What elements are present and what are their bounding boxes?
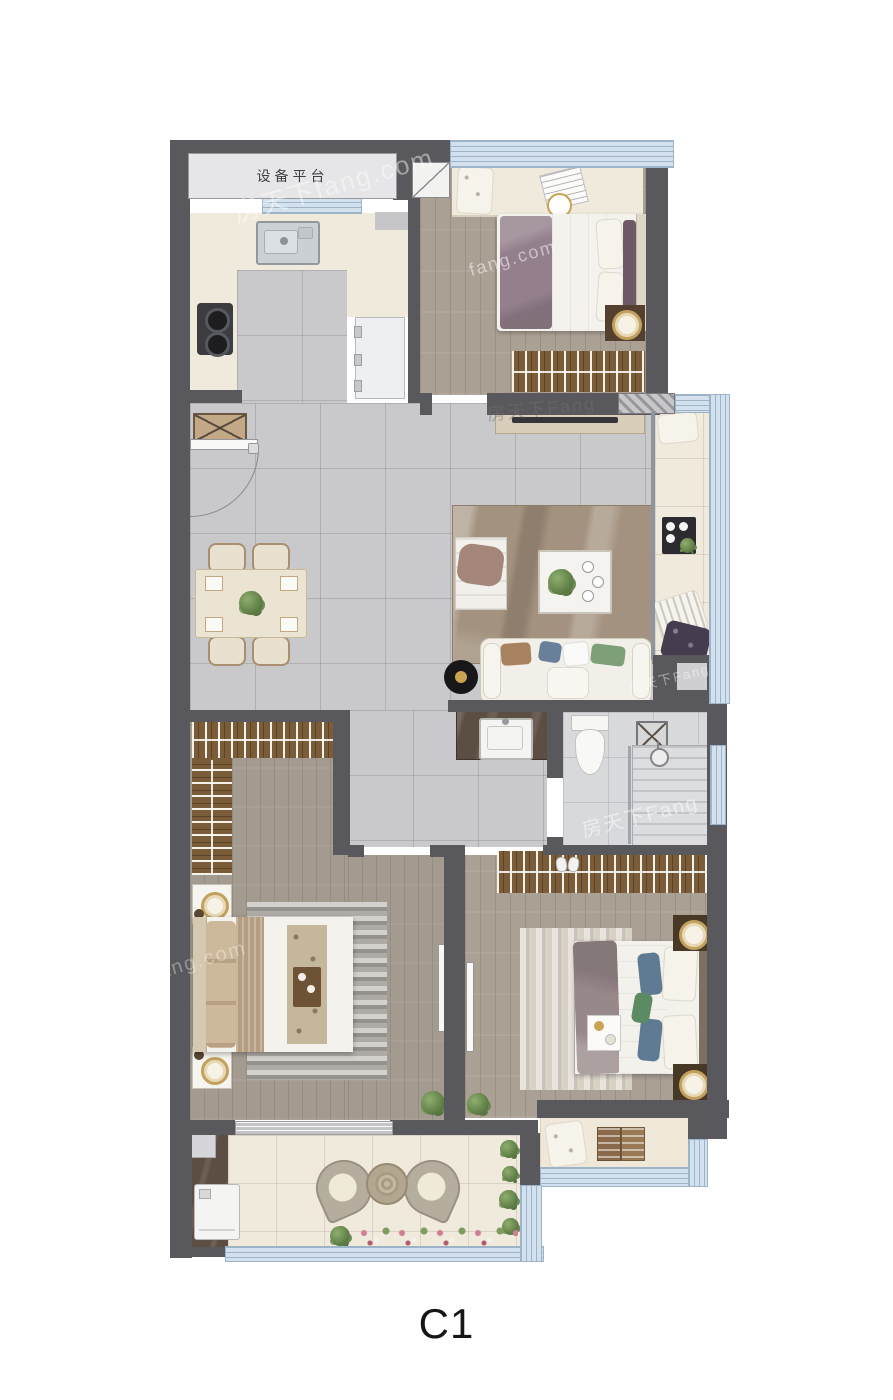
nightstand (605, 305, 645, 341)
bed-throw (573, 940, 622, 1074)
lamp-icon (201, 1057, 229, 1085)
shower-glass-partition (628, 746, 631, 844)
floor-plant-icon (467, 1093, 489, 1115)
wardrobe-top-bedroom (512, 351, 645, 392)
wall-door-jamb (430, 845, 445, 857)
equipment-platform: 设备平台 (188, 153, 397, 199)
cup-icon (605, 1034, 616, 1045)
lamp-icon (679, 1070, 709, 1100)
bay-window-side (688, 1139, 708, 1187)
kitchen-duct-inset (375, 212, 408, 230)
plant-icon (499, 1190, 518, 1209)
cup-icon (666, 534, 675, 543)
sofa-cushion (562, 641, 590, 668)
wall (333, 722, 350, 855)
bathroom-window (710, 745, 726, 825)
cabinet-hinge (354, 380, 362, 392)
bay-window-seat (540, 1117, 690, 1171)
lamp-icon (612, 310, 642, 340)
cup-icon (582, 590, 594, 602)
kitchen-sink (256, 221, 320, 265)
dining-table (195, 569, 307, 638)
cup-icon (582, 561, 594, 573)
wall (187, 710, 350, 722)
wall (646, 162, 668, 405)
book-stack (597, 1127, 621, 1161)
shower-head-icon (650, 748, 669, 767)
wall (547, 702, 563, 778)
cup-icon (666, 522, 675, 531)
lamp-icon (201, 892, 229, 920)
side-balcony-window (709, 394, 730, 704)
nightstand (673, 1064, 709, 1100)
table-plant-icon (239, 591, 263, 615)
wall (547, 837, 563, 855)
tea-tray (662, 517, 696, 554)
bed-pillow (595, 218, 624, 270)
vanity-sink (479, 718, 533, 760)
bed-pillows (206, 921, 236, 1048)
nightstand (673, 915, 709, 951)
wall (520, 1133, 540, 1185)
seat-pillow (544, 1120, 588, 1169)
bedroom-top-window (450, 140, 674, 168)
bed-pillow (662, 946, 699, 1002)
wardrobe-master-left (192, 758, 232, 875)
plant-icon (330, 1226, 350, 1246)
burner-icon (205, 308, 230, 333)
place-setting (280, 617, 298, 632)
sliding-door-threshold (235, 1121, 393, 1135)
chair-seat (324, 1169, 361, 1206)
wall (170, 1133, 192, 1258)
sofa-cushion (590, 643, 626, 667)
sofa (480, 638, 652, 704)
nightstand (192, 1047, 232, 1089)
bed-pillow-blue (637, 952, 663, 996)
equipment-platform-label: 设备平台 (257, 166, 329, 186)
balcony-window-side (520, 1185, 542, 1262)
cabinet-hinge (354, 354, 362, 366)
coffee-table-plant-icon (548, 569, 574, 595)
fridge-cabinet (355, 317, 405, 399)
wall (688, 1117, 727, 1139)
balcony-cushion (657, 411, 700, 445)
cabinet-hinge (354, 326, 362, 338)
floor-plan-page: 设备平台 房天下fang.com fang.com 房天下Fang 房天下Fan… (0, 0, 893, 1400)
balcony-glass-line (651, 412, 655, 660)
burner-icon (205, 332, 230, 357)
balcony-side-table (366, 1163, 408, 1205)
bed-pillow-blue (637, 1018, 663, 1062)
wall (537, 1100, 729, 1118)
wall (444, 845, 465, 1122)
sofa-arm (483, 643, 501, 699)
cup-icon (592, 576, 604, 588)
sofa-cushion (538, 640, 563, 663)
washing-machine (194, 1184, 240, 1240)
unit-label: C1 (419, 1300, 475, 1348)
cup-icon (594, 1021, 604, 1031)
wardrobe-bedroom2 (497, 851, 707, 893)
stove-icon (197, 303, 233, 355)
bed-tray (587, 1015, 621, 1051)
door-hinge (248, 443, 259, 454)
plant-icon (500, 1140, 518, 1158)
washer-line (199, 1229, 235, 1231)
window-seat-pillow (456, 166, 494, 215)
wall-door-jamb (420, 393, 432, 415)
bed-master (193, 917, 353, 1052)
floor-lamp-icon (444, 660, 478, 694)
lamp-bulb-icon (455, 671, 467, 683)
wall-door-jamb (348, 845, 364, 857)
washer-panel (199, 1189, 211, 1199)
sink-basin (487, 726, 523, 750)
balcony-window-bottom (225, 1246, 544, 1262)
place-setting (280, 576, 298, 591)
kitchen-floor (237, 270, 347, 403)
wall-inset (677, 663, 707, 690)
plant-icon (502, 1166, 518, 1182)
flue-shaft (412, 162, 450, 198)
bay-window (540, 1167, 708, 1187)
throw-blanket (455, 542, 505, 588)
wall (390, 1120, 538, 1135)
floor-plant-icon (421, 1091, 445, 1115)
cup-icon (307, 985, 315, 993)
kitchen-counter-right (347, 230, 408, 317)
wall (170, 140, 190, 1137)
sofa-ottoman (547, 667, 589, 699)
cup-icon (679, 522, 688, 531)
shower-arm-icon (657, 742, 659, 749)
tv-icon (512, 417, 618, 423)
chair-seat (413, 1168, 450, 1205)
cup-icon (298, 973, 306, 981)
dining-chair (208, 636, 246, 666)
bed-headboard (193, 917, 207, 1052)
place-setting (205, 576, 223, 591)
coffee-table (538, 550, 612, 614)
bed-throw (500, 216, 552, 329)
bed-bedroom2 (575, 941, 709, 1074)
hatched-wall (618, 393, 675, 414)
sofa-cushion (500, 642, 531, 666)
sofa-arm (632, 643, 650, 699)
wall (543, 845, 727, 855)
place-setting (205, 617, 223, 632)
balcony-inset-box (190, 1134, 216, 1158)
table-top-swirl (375, 1172, 399, 1196)
dining-chair (252, 636, 290, 666)
bed-throw (236, 917, 264, 1052)
shower-area (632, 745, 709, 846)
sink-drainer (298, 227, 313, 239)
wardrobe-master-top (192, 722, 348, 758)
wall (170, 140, 402, 153)
lamp-icon (679, 920, 709, 950)
flower-bed (356, 1225, 518, 1247)
bedroom2-door-leaf (466, 962, 474, 1052)
faucet-icon (502, 718, 509, 725)
wall (448, 700, 710, 712)
bed-tray (293, 967, 321, 1007)
tray-plant-icon (680, 538, 695, 553)
faucet-icon (280, 237, 288, 245)
bed-pillow (662, 1014, 699, 1070)
wall (190, 390, 242, 403)
book-stack (621, 1127, 645, 1161)
wall (190, 1247, 228, 1257)
